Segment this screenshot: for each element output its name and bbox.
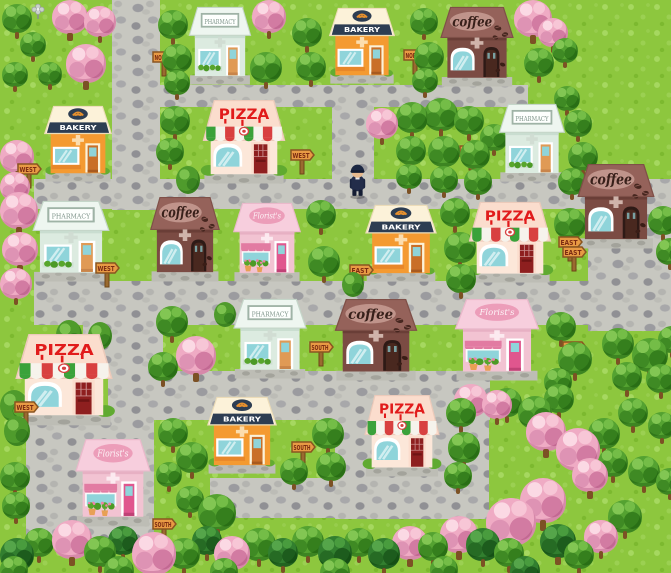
svg-text:coffee: coffee — [348, 305, 393, 322]
green-tree — [306, 200, 336, 235]
svg-text:BAKERY: BAKERY — [223, 415, 262, 424]
building-pharmacy-0[interactable]: PHARMACY — [186, 6, 254, 86]
green-tree — [148, 352, 178, 387]
green-tree — [444, 462, 472, 494]
svg-text:PHARMACY: PHARMACY — [52, 212, 91, 220]
green-tree — [656, 238, 671, 270]
green-tree — [0, 556, 28, 573]
building-bakery-16[interactable]: BAKERY — [204, 396, 280, 475]
svg-text:SOUTH: SOUTH — [312, 344, 329, 352]
svg-text:Florist's: Florist's — [252, 212, 281, 221]
green-tree — [410, 8, 438, 40]
cherry-blossom-tree — [66, 44, 106, 90]
building-florist-18[interactable]: Florist's — [72, 438, 154, 528]
green-tree — [564, 110, 592, 142]
town-map[interactable]: NORTH NORTH BAKERY PHARMACY coffee — [0, 0, 671, 573]
green-tree — [648, 412, 671, 444]
green-tree — [618, 398, 648, 433]
green-tree — [646, 364, 671, 399]
cherry-blossom-tree — [366, 108, 398, 145]
green-tree — [320, 558, 350, 573]
svg-text:PIZZA: PIZZA — [34, 342, 94, 360]
green-tree — [38, 62, 62, 90]
green-tree — [164, 70, 190, 100]
cherry-blossom-tree — [176, 336, 216, 382]
sign-west[interactable]: WEST — [289, 144, 315, 176]
building-bakery-1[interactable]: BAKERY — [326, 7, 398, 85]
green-tree — [250, 52, 282, 89]
sign-east[interactable]: EAST — [561, 241, 587, 273]
svg-text:Florist's: Florist's — [479, 308, 515, 318]
green-tree — [368, 538, 400, 573]
player-character[interactable] — [347, 162, 368, 199]
building-bakery-3[interactable]: BAKERY — [41, 105, 115, 183]
building-coffee-13[interactable]: coffee — [331, 298, 421, 382]
bush — [342, 272, 364, 297]
building-florist-9[interactable]: Florist's — [230, 202, 304, 283]
green-tree — [412, 68, 438, 98]
green-tree — [446, 264, 476, 299]
svg-text:BAKERY: BAKERY — [344, 25, 381, 34]
green-tree — [210, 558, 238, 573]
building-pizza-17[interactable]: PIZZA — [361, 394, 443, 478]
svg-text:Florist's: Florist's — [97, 450, 129, 460]
sign-west[interactable]: WEST — [94, 257, 120, 289]
green-tree — [308, 246, 340, 283]
building-coffee-8[interactable]: coffee — [147, 196, 223, 283]
cherry-blossom-tree — [572, 458, 608, 499]
svg-text:PHARMACY: PHARMACY — [252, 311, 289, 319]
svg-text:PHARMACY: PHARMACY — [204, 19, 236, 26]
cherry-blossom-tree — [84, 6, 116, 43]
green-tree — [552, 38, 578, 68]
green-tree — [316, 452, 346, 487]
building-coffee-6[interactable]: coffee — [574, 163, 658, 250]
cherry-blossom-tree — [132, 532, 176, 573]
cherry-blossom-tree — [482, 390, 512, 425]
svg-text:coffee: coffee — [590, 171, 632, 188]
green-tree — [280, 458, 308, 490]
green-tree — [430, 556, 458, 573]
green-tree — [396, 164, 422, 194]
green-tree — [612, 362, 642, 397]
green-tree — [524, 48, 554, 83]
green-tree — [656, 468, 671, 500]
green-tree — [268, 538, 298, 573]
pinwheel-flower-icon — [30, 2, 46, 20]
svg-text:WEST: WEST — [17, 404, 34, 412]
green-tree — [430, 166, 458, 198]
green-tree — [424, 98, 458, 137]
green-tree — [446, 398, 476, 433]
building-florist-14[interactable]: Florist's — [451, 298, 543, 382]
building-pharmacy-12[interactable]: PHARMACY — [230, 298, 310, 380]
green-tree — [160, 106, 190, 141]
green-tree — [564, 540, 594, 573]
green-tree — [2, 62, 28, 92]
svg-text:WEST: WEST — [293, 152, 310, 160]
green-tree — [312, 418, 344, 455]
svg-text:BAKERY: BAKERY — [382, 223, 422, 232]
svg-text:EAST: EAST — [565, 249, 582, 257]
svg-text:BAKERY: BAKERY — [60, 123, 98, 132]
building-pizza-4[interactable]: PIZZA — [199, 99, 289, 185]
cherry-blossom-tree — [0, 268, 32, 305]
svg-text:SOUTH: SOUTH — [294, 444, 311, 452]
green-tree — [158, 10, 188, 45]
green-tree — [296, 52, 326, 87]
svg-text:PHARMACY: PHARMACY — [515, 115, 549, 123]
svg-text:coffee: coffee — [161, 205, 199, 222]
cherry-blossom-tree — [252, 0, 286, 39]
building-coffee-2[interactable]: coffee — [437, 6, 517, 88]
green-tree — [464, 168, 492, 200]
green-tree — [602, 328, 634, 365]
green-tree — [20, 32, 46, 62]
bush — [4, 416, 30, 446]
green-tree — [396, 102, 428, 139]
green-tree — [510, 556, 540, 573]
green-tree — [292, 18, 322, 53]
svg-text:coffee: coffee — [452, 14, 492, 30]
cherry-blossom-tree — [52, 0, 88, 41]
green-tree — [104, 556, 134, 573]
svg-text:WEST: WEST — [98, 265, 115, 273]
svg-text:SOUTH: SOUTH — [155, 521, 172, 529]
building-pizza-11[interactable]: PIZZA — [465, 201, 555, 284]
bush — [176, 166, 200, 194]
green-tree — [2, 492, 30, 524]
